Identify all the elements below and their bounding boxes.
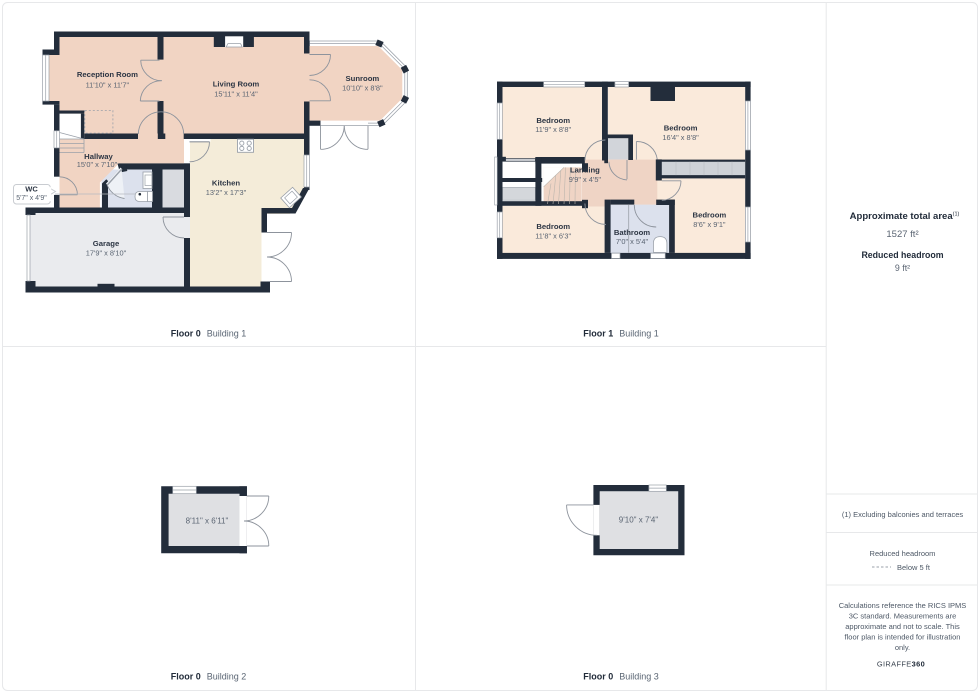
svg-text:Floor 0Building 2: Floor 0Building 2 (171, 672, 247, 682)
svg-text:13'2" x 17'3": 13'2" x 17'3" (206, 188, 247, 197)
svg-text:8'11" x 6'11": 8'11" x 6'11" (186, 517, 229, 526)
svg-text:approximate and not to scale.: approximate and not to scale. This (845, 622, 960, 631)
svg-text:17'9" x 8'10": 17'9" x 8'10" (86, 249, 127, 258)
svg-text:only.: only. (895, 643, 910, 652)
svg-text:11'10" x 11'7": 11'10" x 11'7" (86, 81, 130, 90)
svg-text:Kitchen: Kitchen (212, 179, 240, 188)
svg-text:10'10" x 8'8": 10'10" x 8'8" (342, 84, 383, 93)
svg-text:Bedroom: Bedroom (664, 124, 698, 133)
svg-text:5'7" x 4'9": 5'7" x 4'9" (16, 195, 47, 202)
svg-text:Garage: Garage (93, 239, 120, 248)
svg-text:15'0" x 7'10": 15'0" x 7'10" (77, 160, 118, 169)
svg-text:Bedroom: Bedroom (536, 222, 570, 231)
svg-text:9 ft²: 9 ft² (895, 263, 910, 273)
svg-text:GIRAFFE360: GIRAFFE360 (877, 659, 925, 668)
svg-text:Reduced headroom: Reduced headroom (870, 549, 936, 558)
svg-text:3C standard. Measurements are: 3C standard. Measurements are (849, 612, 957, 621)
svg-text:Approximate total area(1): Approximate total area(1) (850, 211, 960, 222)
svg-text:Living Room: Living Room (213, 80, 260, 89)
svg-text:11'9" x 8'8": 11'9" x 8'8" (535, 125, 571, 134)
svg-text:Floor 1Building 1: Floor 1Building 1 (583, 329, 659, 339)
svg-text:Bathroom: Bathroom (614, 228, 650, 237)
svg-text:9'10" x 7'4": 9'10" x 7'4" (619, 516, 659, 525)
svg-text:Below 5 ft: Below 5 ft (897, 563, 931, 572)
svg-text:Reception Room: Reception Room (77, 70, 138, 79)
svg-text:(1) Excluding balconies and te: (1) Excluding balconies and terraces (842, 510, 964, 519)
svg-text:7'0" x 5'4": 7'0" x 5'4" (616, 237, 649, 246)
svg-text:15'11" x 11'4": 15'11" x 11'4" (214, 90, 258, 99)
svg-text:Bedroom: Bedroom (693, 210, 727, 219)
svg-text:WC: WC (25, 184, 38, 193)
svg-text:8'6" x 9'1": 8'6" x 9'1" (693, 220, 726, 229)
svg-text:9'9" x 4'5": 9'9" x 4'5" (569, 175, 602, 184)
svg-text:Landing: Landing (570, 165, 600, 174)
svg-text:Reduced headroom: Reduced headroom (861, 250, 943, 260)
svg-text:11'8" x 6'3": 11'8" x 6'3" (535, 231, 571, 240)
svg-text:Calculations reference the RIC: Calculations reference the RICS IPMS (839, 601, 967, 610)
svg-text:Sunroom: Sunroom (346, 74, 380, 83)
svg-text:1527 ft²: 1527 ft² (886, 229, 918, 240)
svg-text:Floor 0Building 3: Floor 0Building 3 (583, 672, 659, 682)
svg-text:Bedroom: Bedroom (536, 116, 570, 125)
svg-text:Floor 0Building 1: Floor 0Building 1 (171, 329, 247, 339)
svg-text:16'4" x 8'8": 16'4" x 8'8" (662, 133, 699, 142)
svg-text:floor plan is intended for ill: floor plan is intended for illustration (845, 633, 961, 642)
